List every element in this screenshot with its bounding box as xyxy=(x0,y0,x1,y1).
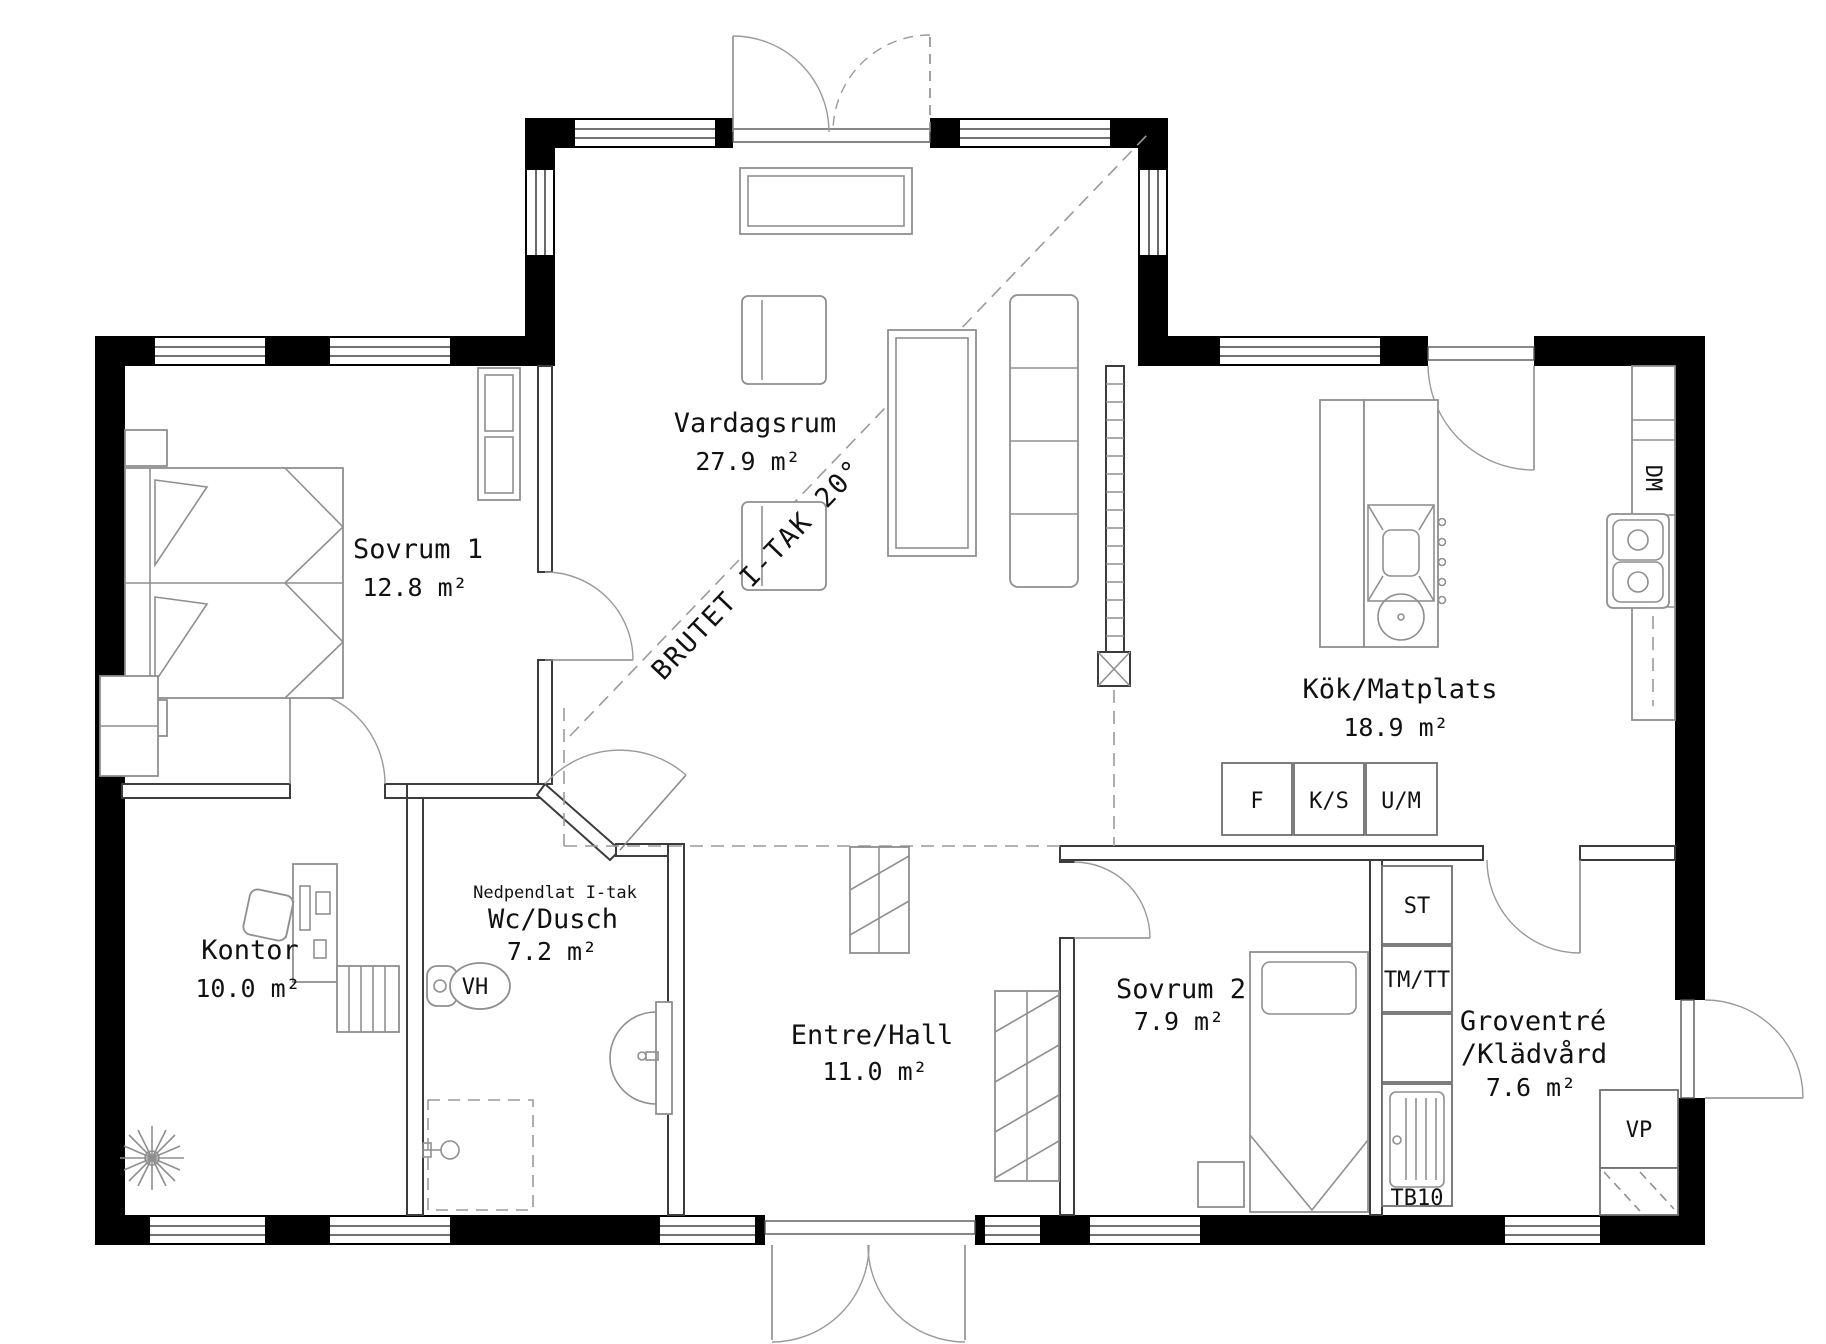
label-vp: VP xyxy=(1626,1118,1653,1143)
label-sovrum1: Sovrum 1 xyxy=(353,534,483,565)
window xyxy=(330,1217,450,1243)
sovrum1-door xyxy=(545,572,633,660)
wall-left xyxy=(95,336,125,1245)
wall-groventre-top xyxy=(1580,846,1675,860)
wall-bath-left xyxy=(407,784,423,1215)
hall-wardrobe xyxy=(995,991,1059,1181)
groventre-inner-door xyxy=(1487,860,1580,953)
kitchen-island xyxy=(1320,400,1446,647)
wall-bath-top xyxy=(407,784,545,798)
window xyxy=(1090,1217,1200,1243)
window xyxy=(575,120,715,146)
floor-plan-page: Vardagsrum 27.9 m² Sovrum 1 12.8 m² Kök/… xyxy=(0,0,1826,1344)
sovrum2-door xyxy=(1074,862,1150,938)
window xyxy=(155,338,265,364)
wall-sovrum2-groventre xyxy=(1370,860,1382,1215)
kontor-door xyxy=(290,689,385,784)
area-vardagsrum: 27.9 m² xyxy=(695,447,800,476)
label-wc: Wc/Dusch xyxy=(488,904,618,935)
entre-furniture xyxy=(850,847,1059,1181)
label-tb10: TB10 xyxy=(1391,1186,1444,1211)
label-kontor: Kontor xyxy=(201,935,299,966)
main-entrance-double-door xyxy=(765,1215,975,1342)
wall-bath-chamfer xyxy=(537,784,620,860)
wall-right xyxy=(1675,336,1705,1245)
bookshelf xyxy=(337,966,399,1032)
area-kok: 18.9 m² xyxy=(1343,713,1448,742)
label-entre: Entre/Hall xyxy=(791,1020,954,1051)
desk xyxy=(293,864,337,982)
label-wc-ceiling-note: Nedpendlat I-tak xyxy=(473,883,637,903)
nightstand xyxy=(1198,1162,1244,1207)
area-groventre: 7.6 m² xyxy=(1486,1073,1576,1102)
tv-bench xyxy=(740,168,912,234)
kitchen-sink xyxy=(1607,514,1669,608)
label-ks: K/S xyxy=(1309,789,1349,814)
label-dm: DM xyxy=(1640,465,1665,492)
wall-cabinet xyxy=(100,676,158,776)
shower xyxy=(423,1100,533,1210)
window xyxy=(660,1217,755,1243)
label-vh: VH xyxy=(462,975,489,1000)
label-tmtt: TM/TT xyxy=(1384,968,1450,993)
wall-sovrum1-right xyxy=(538,366,552,572)
area-sovrum1: 12.8 m² xyxy=(362,573,467,602)
bench-box xyxy=(1382,1014,1452,1082)
coffee-table xyxy=(888,330,976,556)
window xyxy=(1140,170,1166,255)
label-kok: Kök/Matplats xyxy=(1302,674,1497,705)
wall-sovrum1-bottom xyxy=(122,784,290,798)
area-wc: 7.2 m² xyxy=(507,937,597,966)
patio-double-door xyxy=(733,35,930,148)
plant xyxy=(120,1126,184,1190)
label-f: F xyxy=(1250,789,1263,814)
area-kontor: 10.0 m² xyxy=(195,974,300,1003)
kitchen-fixtures xyxy=(1222,366,1675,835)
window xyxy=(150,1217,265,1243)
window xyxy=(1220,338,1380,364)
heat-pump xyxy=(1600,1090,1678,1215)
wall-sovrum1-right-lower xyxy=(538,660,552,784)
label-vardagsrum: Vardagsrum xyxy=(674,408,837,439)
area-sovrum2: 7.9 m² xyxy=(1134,1007,1224,1036)
window xyxy=(1505,1217,1600,1243)
washbasin xyxy=(610,1002,672,1114)
bathroom-door xyxy=(545,750,686,850)
label-groventre-2: /Klädvård xyxy=(1461,1039,1607,1070)
nightstand xyxy=(125,430,167,466)
armchair xyxy=(742,296,826,384)
wardrobe xyxy=(478,368,520,500)
bed xyxy=(1250,952,1368,1212)
window xyxy=(960,120,1110,146)
label-roof-break: BRUTET I-TAK 20° xyxy=(646,453,870,686)
window xyxy=(985,1217,1040,1243)
label-groventre-1: Groventré xyxy=(1460,1006,1606,1037)
wall-sovrum2-top xyxy=(1060,846,1483,860)
kontor-furniture xyxy=(100,676,399,1190)
label-sovrum2: Sovrum 2 xyxy=(1116,974,1246,1005)
floor-plan-drawing: Vardagsrum 27.9 m² Sovrum 1 12.8 m² Kök/… xyxy=(0,0,1826,1344)
office-chair xyxy=(242,888,295,942)
hall-cabinet xyxy=(850,847,909,953)
window xyxy=(527,170,553,255)
sofa xyxy=(1010,295,1078,587)
kitchen-entry-door xyxy=(1428,336,1534,470)
hatched-partition xyxy=(1098,366,1130,686)
window xyxy=(330,338,450,364)
bathroom-fixtures xyxy=(423,963,672,1210)
double-bed xyxy=(125,468,343,698)
label-st: ST xyxy=(1404,894,1431,919)
area-entre: 11.0 m² xyxy=(822,1057,927,1086)
wall-entre-sovrum2-lower xyxy=(1060,938,1074,1215)
label-um: U/M xyxy=(1381,789,1421,814)
groventre-exterior-door xyxy=(1675,1000,1803,1098)
